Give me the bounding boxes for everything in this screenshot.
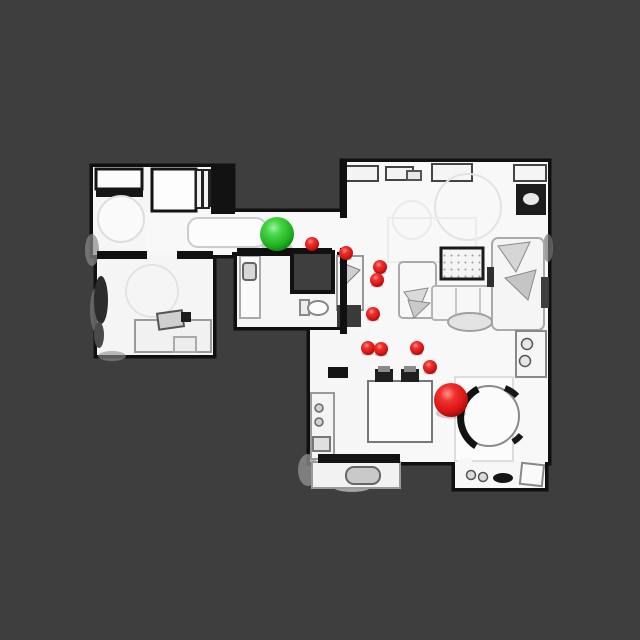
goal-marker	[434, 383, 468, 417]
sill-object	[407, 171, 421, 180]
printer	[174, 337, 196, 352]
dining-table	[368, 381, 432, 442]
waypoint-marker	[366, 307, 380, 321]
toilet-bowl	[308, 301, 328, 315]
wall-clutter	[94, 322, 104, 348]
dining-chair-top	[378, 366, 390, 372]
wall-living-left-lower	[340, 248, 347, 334]
closet-item	[523, 193, 539, 205]
wall-left-rooms-a	[97, 251, 147, 259]
stove-knob	[315, 404, 323, 412]
waypoint-marker	[373, 260, 387, 274]
dining-chair-top	[404, 366, 416, 372]
kitchen-sink	[313, 437, 330, 451]
faucet	[467, 471, 476, 480]
corner-fixture	[520, 463, 544, 486]
window-gap-right	[541, 277, 549, 308]
washer-closet	[516, 331, 546, 377]
washer-dial	[522, 339, 533, 350]
waypoint-marker	[361, 341, 375, 355]
door-gap-bath-bottom	[458, 458, 472, 466]
side-table-dark	[487, 267, 494, 287]
waypoint-marker	[423, 360, 437, 374]
start-marker	[260, 217, 294, 251]
waypoint-marker	[374, 342, 388, 356]
drain-dark	[493, 473, 513, 483]
tufted-ottoman	[441, 248, 483, 279]
wall-stub-kitchen	[328, 367, 348, 378]
wall-band-bottom	[318, 454, 400, 463]
appliance-tray	[346, 467, 380, 484]
hallway-bench	[188, 218, 266, 247]
cabinet-top-left	[96, 169, 142, 189]
sill-object	[514, 165, 546, 181]
unscanned-block	[292, 252, 333, 292]
faucet	[479, 473, 488, 482]
waypoint-marker	[370, 273, 384, 287]
storage-box	[152, 169, 196, 211]
screen-slat	[203, 170, 209, 208]
laptop	[157, 310, 184, 329]
desk-item	[181, 312, 191, 322]
sofa-blanket	[448, 313, 492, 331]
waypoint-marker	[339, 246, 353, 260]
waypoint-marker	[410, 341, 424, 355]
sill-object	[345, 166, 378, 181]
wall-left-rooms-b	[177, 251, 213, 259]
washer-dial	[520, 356, 531, 367]
round-table	[98, 196, 144, 242]
wall-living-left-upper	[340, 162, 347, 218]
wall-block-top-right	[211, 164, 235, 214]
stove-knob	[315, 418, 323, 426]
waypoint-marker	[305, 237, 319, 251]
floorplan-canvas	[0, 0, 640, 640]
wall-clutter	[94, 276, 108, 324]
screen-slat	[196, 170, 202, 208]
scan-viewer-viewport[interactable]	[0, 0, 640, 640]
sink	[243, 263, 256, 280]
